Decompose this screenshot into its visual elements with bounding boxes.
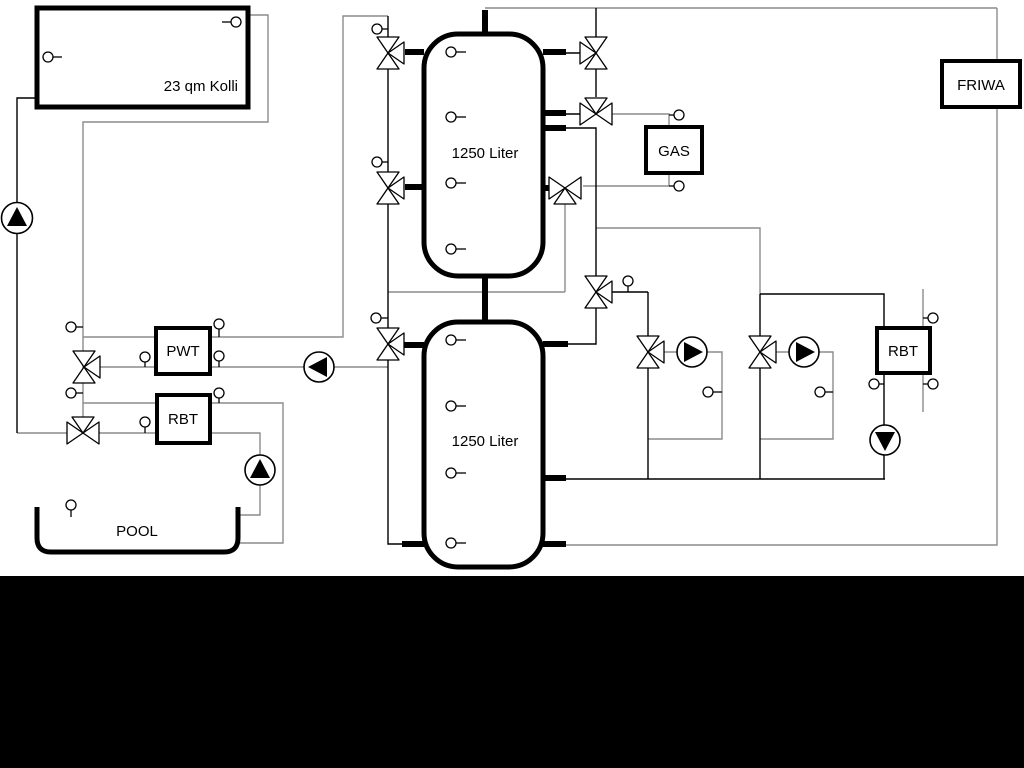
- pump-rbt-right-icon: [870, 425, 900, 455]
- temp-sensor-icon: [669, 110, 684, 120]
- rbt-right-label: RBT: [888, 343, 918, 360]
- temp-sensor-icon: [372, 24, 388, 34]
- pump-solar-icon: [2, 203, 33, 234]
- temp-sensor-icon: [66, 322, 83, 332]
- gas-boiler-label: GAS: [658, 143, 690, 160]
- schematic-canvas: 23 qm Kolli 1250 Liter 1250 Liter PWT RB…: [0, 0, 1024, 768]
- pipe-valve-column: [388, 16, 404, 544]
- three-way-valve-icon: [580, 98, 612, 125]
- temp-sensor-icon: [869, 379, 884, 389]
- temp-sensor-icon: [669, 181, 684, 191]
- pump-circuit-b-icon: [789, 337, 819, 367]
- solar-collector-label: 23 qm Kolli: [164, 78, 238, 95]
- pipe-rbt-right-feed: [760, 294, 884, 328]
- buffer-tank-top-label: 1250 Liter: [452, 145, 519, 162]
- temp-sensor-icon: [214, 388, 224, 403]
- temp-sensor-icon: [140, 417, 150, 433]
- three-way-valve-icon: [585, 276, 612, 308]
- temp-sensor-icon: [214, 351, 224, 367]
- bottom-black-bar: [0, 576, 1024, 768]
- rbt-left-label: RBT: [168, 411, 198, 428]
- pipe-stub-links-right: [565, 53, 580, 114]
- three-way-valve-icon: [73, 351, 100, 383]
- three-way-valve-icon: [749, 336, 776, 368]
- three-way-valve-icon: [377, 172, 404, 204]
- pump-pwt-icon: [304, 352, 334, 382]
- pipe-valve-d-feed: [565, 128, 596, 292]
- buffer-tank-bottom-label: 1250 Liter: [452, 433, 519, 450]
- three-way-valve-icon: [67, 417, 99, 444]
- schematic-page: 23 qm Kolli 1250 Liter 1250 Liter PWT RB…: [0, 0, 1024, 768]
- pool-label: POOL: [116, 523, 158, 540]
- temp-sensor-icon: [372, 157, 388, 167]
- temp-sensor-icon: [623, 276, 633, 292]
- three-way-valve-icon: [377, 37, 404, 69]
- three-way-valve-icon: [377, 328, 404, 360]
- three-way-valve-icon: [549, 177, 581, 204]
- pump-pool-icon: [245, 455, 275, 485]
- three-way-valve-icon: [580, 37, 607, 69]
- pump-circuit-a-icon: [677, 337, 707, 367]
- temp-sensor-icon: [140, 352, 150, 367]
- temp-sensor-icon: [815, 387, 833, 397]
- temp-sensor-icon: [66, 388, 83, 398]
- three-way-valve-icon: [637, 336, 664, 368]
- temp-sensor-icon: [214, 319, 224, 337]
- pwt-label: PWT: [166, 343, 199, 360]
- pipe-circuit-feed: [596, 228, 760, 294]
- friwa-label: FRIWA: [957, 77, 1005, 94]
- temp-sensor-icon: [923, 313, 938, 323]
- pipe-solar-riser: [17, 98, 37, 433]
- temp-sensor-icon: [371, 313, 388, 323]
- temp-sensor-icon: [66, 500, 76, 517]
- temp-sensor-icon: [703, 387, 722, 397]
- temp-sensor-icon: [923, 379, 938, 389]
